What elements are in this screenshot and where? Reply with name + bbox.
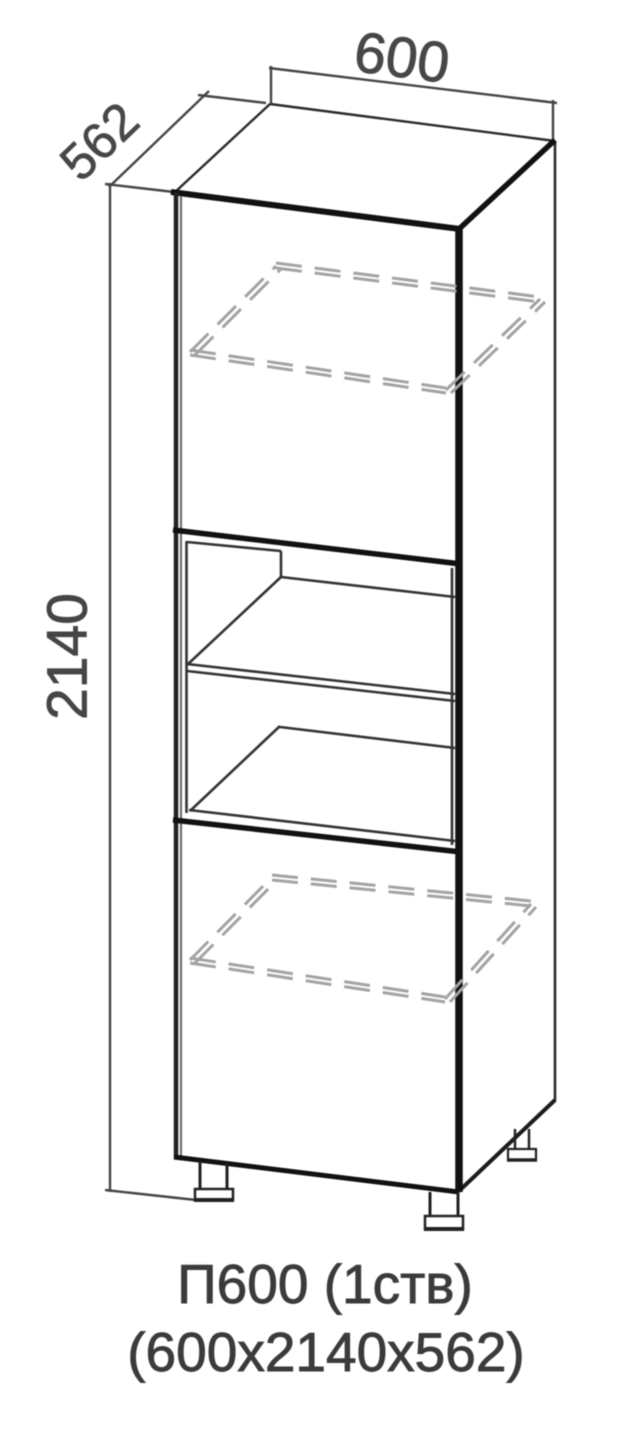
svg-text:(600х2140х562): (600х2140х562) [127, 1321, 525, 1383]
svg-text:2140: 2140 [36, 593, 100, 720]
svg-text:600: 600 [351, 20, 454, 96]
svg-text:П600 (1ств): П600 (1ств) [177, 1253, 473, 1315]
svg-text:562: 562 [49, 91, 150, 191]
